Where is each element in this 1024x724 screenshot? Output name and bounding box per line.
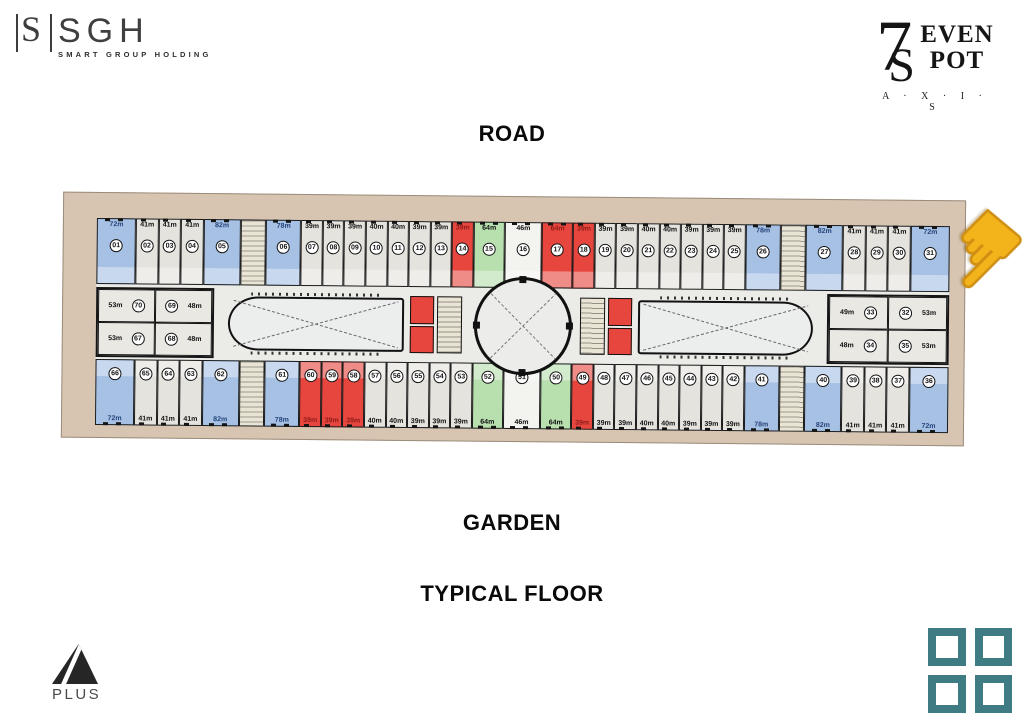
unit-number-badge: 45: [662, 372, 675, 385]
unit-63[interactable]: 41m63: [179, 360, 202, 426]
unit-64[interactable]: 41m64: [157, 360, 180, 426]
unit-size-label: 72m: [921, 423, 935, 430]
unit-66[interactable]: 72m66: [95, 359, 135, 425]
unit-number-badge: 68: [165, 332, 178, 345]
unit-size-label: 49m: [840, 309, 854, 316]
unit-58[interactable]: 39m58: [342, 361, 364, 427]
unit-size-label: 41m: [163, 222, 177, 229]
unit-49[interactable]: 39m49: [571, 364, 593, 430]
unit-57[interactable]: 40m57: [364, 362, 386, 428]
unit-number-badge: 13: [434, 242, 447, 255]
unit-size-label: 39m: [620, 226, 634, 233]
unit-62[interactable]: 82m62: [202, 360, 240, 426]
unit-size-label: 48m: [840, 342, 854, 349]
sgh-logo-text: SGH SMART GROUP HOLDING: [58, 14, 212, 59]
unit-number-badge: 39: [847, 374, 860, 387]
unit-60[interactable]: 39m60: [299, 361, 321, 427]
unit-size-label: 82m: [818, 228, 832, 235]
unit-02[interactable]: 41m02: [135, 218, 158, 284]
unit-20[interactable]: 39m20: [616, 223, 638, 289]
unit-45[interactable]: 40m45: [657, 364, 679, 430]
unit-size-label: 39m: [327, 223, 341, 230]
staircase-right: [579, 298, 605, 355]
unit-36[interactable]: 72m36: [909, 367, 949, 433]
unit-number-badge: 50: [550, 371, 563, 384]
unit-54[interactable]: 39m54: [429, 362, 451, 428]
unit-23[interactable]: 39m23: [680, 224, 702, 290]
unit-61[interactable]: 78m61: [264, 361, 300, 427]
unit-size-label: 82m: [816, 422, 830, 429]
unit-number-badge: 15: [482, 243, 495, 256]
unit-number-badge: 47: [619, 372, 632, 385]
unit-52[interactable]: 64m52: [472, 363, 504, 429]
unit-size-label: 39m: [618, 420, 632, 427]
unit-number-badge: 33: [864, 306, 877, 319]
unit-18[interactable]: 39m18: [573, 223, 595, 289]
unit-size-label: 53m: [108, 335, 122, 342]
unit-number-badge: 53: [455, 370, 468, 383]
sevenspot-axis: A · X · I · S: [874, 91, 996, 113]
unit-27[interactable]: 82m27: [806, 225, 844, 291]
unit-38[interactable]: 41m38: [864, 366, 887, 432]
unit-number-badge: 44: [684, 373, 697, 386]
unit-size-label: 39m: [704, 421, 718, 428]
unit-size-label: 41m: [161, 416, 175, 423]
unit-size-label: 53m: [108, 302, 122, 309]
unit-number-badge: 22: [663, 244, 676, 257]
unit-09[interactable]: 39m09: [344, 220, 366, 286]
unit-size-label: 39m: [597, 420, 611, 427]
typical-floor-label: TYPICAL FLOOR: [0, 581, 1024, 607]
unit-size-label: 41m: [868, 422, 882, 429]
unit-number-badge: 37: [892, 375, 905, 388]
unit-number-badge: 10: [370, 242, 383, 255]
unit-size-label: 41m: [846, 422, 860, 429]
elevator-core-left: [409, 296, 462, 353]
sevenspot-pot: POT: [920, 48, 993, 74]
unit-size-label: 82m: [215, 222, 229, 229]
unit-size-label: 78m: [275, 417, 289, 424]
unit-01[interactable]: 72m01: [96, 218, 136, 284]
unit-size-label: 40m: [391, 224, 405, 231]
unit-size-label: 78m: [756, 227, 770, 234]
unit-size-label: 40m: [640, 420, 654, 427]
unit-28[interactable]: 41m28: [843, 225, 866, 291]
unit-number-badge: 48: [598, 372, 611, 385]
unit-number-badge: 07: [305, 241, 318, 254]
unit-number-badge: 59: [326, 369, 339, 382]
unit-21[interactable]: 40m21: [637, 223, 659, 289]
unit-59[interactable]: 39m59: [321, 361, 343, 427]
hall-right: [637, 300, 813, 356]
unit-43[interactable]: 39m43: [701, 365, 723, 431]
unit-number-badge: 03: [163, 240, 176, 253]
garden-label: GARDEN: [0, 510, 1024, 536]
unit-70[interactable]: 53m70: [98, 289, 155, 323]
aplus-logo: PLUS: [52, 644, 116, 703]
unit-53[interactable]: 39m53: [450, 362, 472, 428]
unit-size-label: 78m: [754, 421, 768, 428]
unit-number-badge: 42: [727, 373, 740, 386]
unit-size-label: 41m: [891, 423, 905, 430]
unit-26[interactable]: 78m26: [745, 224, 781, 290]
unit-size-label: 39m: [305, 223, 319, 230]
unit-number-badge: 64: [162, 368, 175, 381]
unit-14[interactable]: 39m14: [451, 221, 473, 287]
unit-number-badge: 67: [131, 332, 144, 345]
unit-size-label: 46m: [516, 225, 530, 232]
unit-42[interactable]: 39m42: [722, 365, 744, 431]
unit-size-label: 39m: [599, 226, 613, 233]
sgh-logo: S SGH SMART GROUP HOLDING: [16, 14, 212, 59]
unit-size-label: 48m: [187, 335, 201, 342]
unit-size-label: 40m: [370, 224, 384, 231]
unit-size-label: 39m: [434, 224, 448, 231]
unit-32[interactable]: 3253m: [888, 296, 947, 330]
unit-size-label: 72m: [109, 221, 123, 228]
unit-number-badge: 70: [132, 299, 145, 312]
unit-number-badge: 27: [818, 246, 831, 259]
unit-number-badge: 20: [620, 244, 633, 257]
unit-size-label: 39m: [413, 224, 427, 231]
unit-11[interactable]: 40m11: [387, 221, 409, 287]
unit-size-label: 39m: [577, 226, 591, 233]
unit-size-label: 48m: [188, 302, 202, 309]
unit-50[interactable]: 64m50: [540, 363, 572, 429]
square-tile: [928, 675, 966, 713]
square-tile: [975, 628, 1013, 666]
unit-size-label: 64m: [551, 225, 565, 232]
unit-size-label: 40m: [368, 418, 382, 425]
unit-number-badge: 16: [517, 243, 530, 256]
unit-number-badge: 25: [728, 245, 741, 258]
unit-number-badge: 23: [685, 245, 698, 258]
unit-08[interactable]: 39m08: [322, 220, 344, 286]
unit-size-label: 39m: [411, 418, 425, 425]
unit-68[interactable]: 6848m: [155, 322, 212, 356]
staircase-left: [436, 296, 462, 353]
unit-size-label: 39m: [454, 418, 468, 425]
unit-41[interactable]: 78m41: [744, 365, 780, 431]
sgh-monogram-letter: S: [21, 8, 41, 50]
unit-size-label: 41m: [185, 222, 199, 229]
unit-size-label: 39m: [456, 224, 470, 231]
unit-size-label: 40m: [642, 226, 656, 233]
unit-number-badge: 65: [139, 367, 152, 380]
unit-size-label: 64m: [482, 225, 496, 232]
central-atrium: [473, 276, 572, 375]
unit-number-badge: 63: [184, 368, 197, 381]
unit-number-badge: 18: [577, 244, 590, 257]
unit-size-label: 72m: [108, 415, 122, 422]
unit-size-label: 82m: [213, 416, 227, 423]
mid-right-block: 49m333253m48m343553m: [827, 294, 950, 365]
unit-number-badge: 60: [304, 369, 317, 382]
unit-number-badge: 12: [413, 242, 426, 255]
unit-34[interactable]: 48m34: [829, 329, 888, 363]
unit-number-badge: 01: [110, 239, 123, 252]
unit-size-label: 39m: [346, 417, 360, 424]
sevenspot-even: EVEN: [920, 22, 993, 48]
road-label: ROAD: [0, 121, 1024, 147]
unit-size-label: 39m: [432, 418, 446, 425]
sgh-monogram-icon: S: [16, 14, 52, 52]
unit-number-badge: 52: [481, 371, 494, 384]
stair-core: [239, 360, 265, 426]
unit-size-label: 39m: [726, 421, 740, 428]
unit-12[interactable]: 39m12: [408, 221, 430, 287]
unit-size-label: 46m: [514, 419, 528, 426]
aplus-triangle-icon: [52, 644, 98, 684]
unit-size-label: 39m: [685, 227, 699, 234]
unit-67[interactable]: 53m67: [98, 322, 155, 356]
unit-number-badge: 49: [576, 372, 589, 385]
unit-19[interactable]: 39m19: [594, 223, 616, 289]
unit-size-label: 78m: [277, 223, 291, 230]
unit-size-label: 41m: [140, 221, 154, 228]
unit-number-badge: 04: [185, 240, 198, 253]
unit-33[interactable]: 49m33: [829, 296, 888, 330]
unit-29[interactable]: 41m29: [865, 225, 888, 291]
unit-37[interactable]: 41m37: [886, 367, 909, 433]
unit-size-label: 64m: [480, 419, 494, 426]
hall-left: [228, 296, 404, 352]
unit-number-badge: 66: [108, 367, 121, 380]
unit-size-label: 39m: [325, 417, 339, 424]
unit-number-badge: 38: [869, 374, 882, 387]
unit-size-label: 53m: [922, 342, 936, 349]
unit-size-label: 39m: [728, 227, 742, 234]
unit-06[interactable]: 78m06: [266, 220, 302, 286]
unit-22[interactable]: 40m22: [659, 223, 681, 289]
unit-10[interactable]: 40m10: [365, 221, 387, 287]
mid-left-block: 53m706948m53m676848m: [96, 286, 215, 357]
unit-number-badge: 24: [706, 245, 719, 258]
unit-size-label: 40m: [389, 418, 403, 425]
unit-number-badge: 69: [165, 299, 178, 312]
sgh-name: SGH: [58, 14, 212, 48]
unit-size-label: 64m: [549, 419, 563, 426]
unit-47[interactable]: 39m47: [614, 364, 636, 430]
stair-core: [240, 219, 266, 285]
sevenspot-logo: 7 S EVEN POT A · X · I · S: [874, 16, 996, 113]
stair-core: [780, 225, 806, 291]
elevator-core-right: [579, 298, 632, 355]
unit-number-badge: 35: [899, 339, 912, 352]
unit-number-badge: 26: [756, 245, 769, 258]
unit-46[interactable]: 40m46: [636, 364, 658, 430]
unit-number-badge: 57: [369, 370, 382, 383]
unit-size-label: 40m: [661, 420, 675, 427]
elevator-block-left: [409, 296, 434, 353]
sevenspot-s: S: [888, 42, 915, 90]
unit-number-badge: 02: [140, 239, 153, 252]
unit-size-label: 39m: [683, 421, 697, 428]
unit-number-badge: 06: [277, 241, 290, 254]
unit-number-badge: 29: [870, 246, 883, 259]
floor-plan: 72m0141m0241m0341m0482m0578m0639m0739m08…: [61, 192, 966, 447]
unit-56[interactable]: 40m56: [385, 362, 407, 428]
unit-number-badge: 11: [391, 242, 404, 255]
unit-number-badge: 28: [848, 246, 861, 259]
unit-number-badge: 55: [412, 370, 425, 383]
unit-number-badge: 32: [899, 306, 912, 319]
unit-24[interactable]: 39m24: [702, 224, 724, 290]
unit-03[interactable]: 41m03: [158, 219, 181, 285]
unit-number-badge: 58: [347, 369, 360, 382]
unit-39[interactable]: 41m39: [841, 366, 864, 432]
unit-35[interactable]: 3553m: [888, 329, 947, 363]
unit-number-badge: 19: [599, 244, 612, 257]
unit-number-badge: 41: [755, 373, 768, 386]
unit-size-label: 53m: [922, 309, 936, 316]
square-tile: [928, 628, 966, 666]
unit-04[interactable]: 41m04: [180, 219, 203, 285]
unit-25[interactable]: 39m25: [723, 224, 745, 290]
unit-number-badge: 61: [276, 369, 289, 382]
unit-number-badge: 54: [433, 370, 446, 383]
page: S SGH SMART GROUP HOLDING 7 S EVEN POT A…: [0, 0, 1024, 724]
unit-size-label: 39m: [303, 417, 317, 424]
unit-number-badge: 62: [214, 368, 227, 381]
unit-number-badge: 46: [641, 372, 654, 385]
sgh-tagline: SMART GROUP HOLDING: [58, 50, 212, 59]
elevator-block-right: [607, 298, 632, 355]
unit-size-label: 39m: [348, 223, 362, 230]
aplus-text: PLUS: [52, 686, 116, 703]
unit-40[interactable]: 82m40: [804, 366, 842, 432]
unit-number-badge: 40: [817, 374, 830, 387]
unit-15[interactable]: 64m15: [473, 222, 505, 288]
unit-number-badge: 21: [642, 244, 655, 257]
four-squares-icon[interactable]: [928, 628, 1012, 713]
unit-number-badge: 08: [327, 241, 340, 254]
unit-size-label: 39m: [706, 227, 720, 234]
unit-13[interactable]: 39m13: [430, 221, 452, 287]
unit-number-badge: 17: [551, 243, 564, 256]
stair-core: [779, 366, 805, 432]
unit-number-badge: 34: [864, 339, 877, 352]
unit-number-badge: 43: [705, 373, 718, 386]
floor-area: 72m0141m0241m0341m0482m0578m0639m0739m08…: [95, 218, 950, 433]
unit-number-badge: 09: [348, 241, 361, 254]
unit-69[interactable]: 6948m: [155, 289, 212, 323]
unit-size-label: 41m: [183, 416, 197, 423]
unit-07[interactable]: 39m07: [301, 220, 323, 286]
unit-size-label: 39m: [575, 420, 589, 427]
unit-number-badge: 05: [215, 240, 228, 253]
unit-65[interactable]: 41m65: [134, 359, 157, 425]
unit-size-label: 41m: [870, 228, 884, 235]
unit-48[interactable]: 39m48: [593, 364, 615, 430]
square-tile: [975, 675, 1013, 713]
unit-size-label: 41m: [848, 228, 862, 235]
sevenspot-7s-mark: 7 S: [876, 16, 920, 88]
unit-number-badge: 56: [390, 370, 403, 383]
unit-number-badge: 36: [922, 375, 935, 388]
unit-05[interactable]: 82m05: [203, 219, 241, 285]
unit-44[interactable]: 39m44: [679, 365, 701, 431]
unit-17[interactable]: 64m17: [541, 222, 573, 288]
unit-size-label: 41m: [138, 415, 152, 422]
unit-size-label: 40m: [663, 226, 677, 233]
unit-number-badge: 14: [456, 242, 469, 255]
unit-55[interactable]: 39m55: [407, 362, 429, 428]
